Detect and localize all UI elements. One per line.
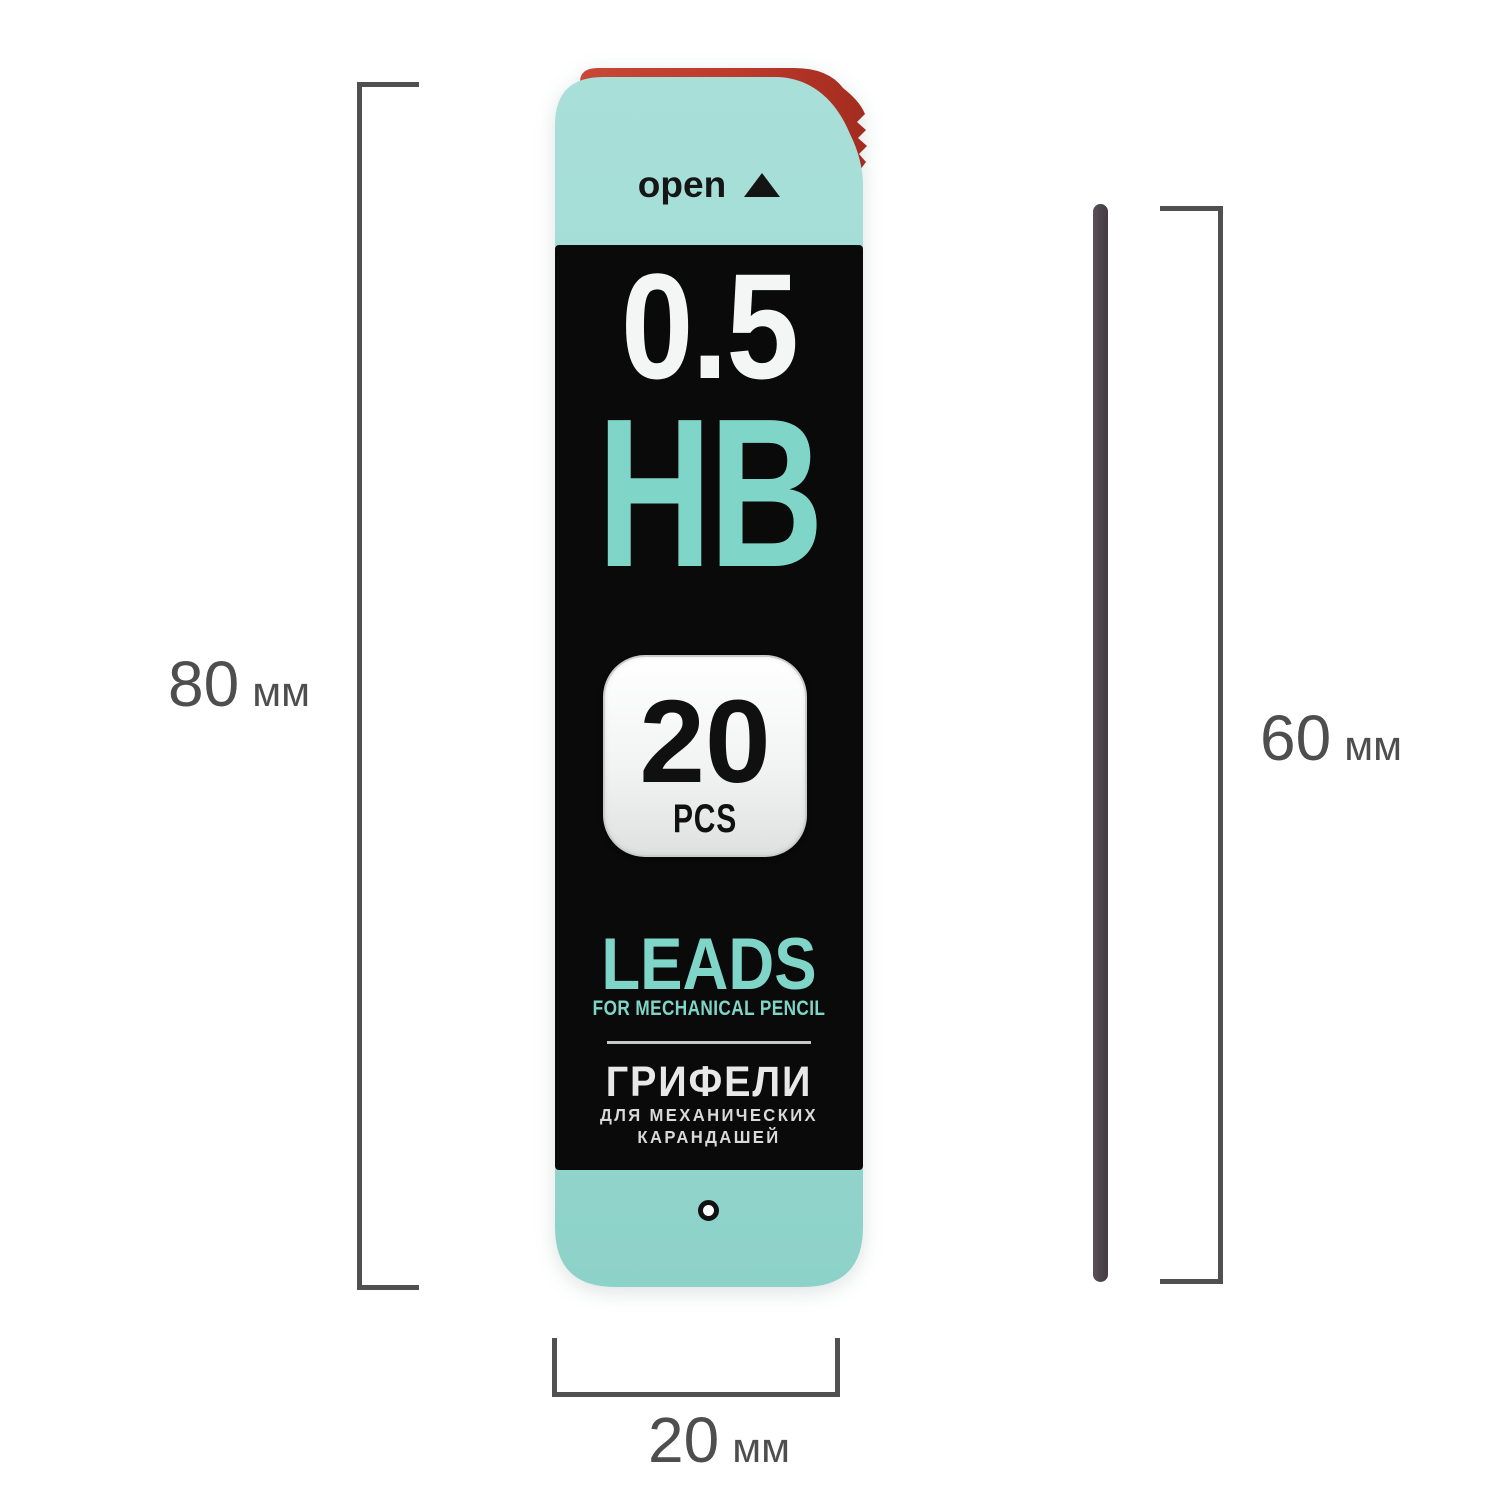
lead-length-tick-top (1160, 206, 1223, 211)
lead-length-unit: мм (1344, 725, 1402, 767)
lead-length-tick-bottom (1160, 1279, 1223, 1284)
product-subtitle-ru-line1: ДЛЯ МЕХАНИЧЕСКИХ (563, 1107, 856, 1125)
count-badge: 20 PCS (603, 655, 807, 857)
lead-length-dimension-label: 60 мм (1260, 706, 1402, 770)
height-dimension-label: 80 мм (168, 652, 310, 716)
count-value: 20 (605, 683, 805, 801)
lead-stick (1093, 204, 1108, 1282)
product-subtitle-en: FOR MECHANICAL PENCIL (586, 998, 832, 1020)
width-tick-right (835, 1338, 840, 1397)
leads-package: open 0.5 HB 20 PCS LEADS FOR MECHANICAL … (540, 62, 880, 1294)
height-dimension-line (357, 82, 362, 1290)
width-tick-left (552, 1338, 557, 1397)
product-name-en: LEADS (575, 928, 843, 1001)
label-divider (607, 1041, 811, 1044)
black-label: 0.5 HB 20 PCS LEADS FOR MECHANICAL PENCI… (555, 245, 863, 1170)
width-unit: мм (732, 1427, 790, 1469)
open-label: open (638, 166, 726, 203)
count-unit: PCS (630, 799, 780, 839)
width-value: 20 (648, 1408, 719, 1472)
product-name-ru: ГРИФЕЛИ (567, 1061, 850, 1104)
height-dimension-tick-bottom (357, 1285, 419, 1290)
height-dimension-tick-top (357, 82, 419, 87)
width-dimension-line (552, 1392, 840, 1397)
lead-length-dimension-line (1218, 206, 1223, 1284)
open-triangle-up-icon (744, 173, 780, 197)
product-subtitle-ru-line2: КАРАНДАШЕЙ (563, 1129, 856, 1147)
hang-hole-icon (698, 1200, 719, 1221)
width-dimension-label: 20 мм (648, 1408, 790, 1472)
height-unit: мм (252, 671, 310, 713)
open-instruction: open (540, 166, 878, 203)
lead-length-value: 60 (1260, 706, 1331, 770)
height-value: 80 (168, 652, 239, 716)
hardness-grade-text: HB (594, 387, 825, 599)
